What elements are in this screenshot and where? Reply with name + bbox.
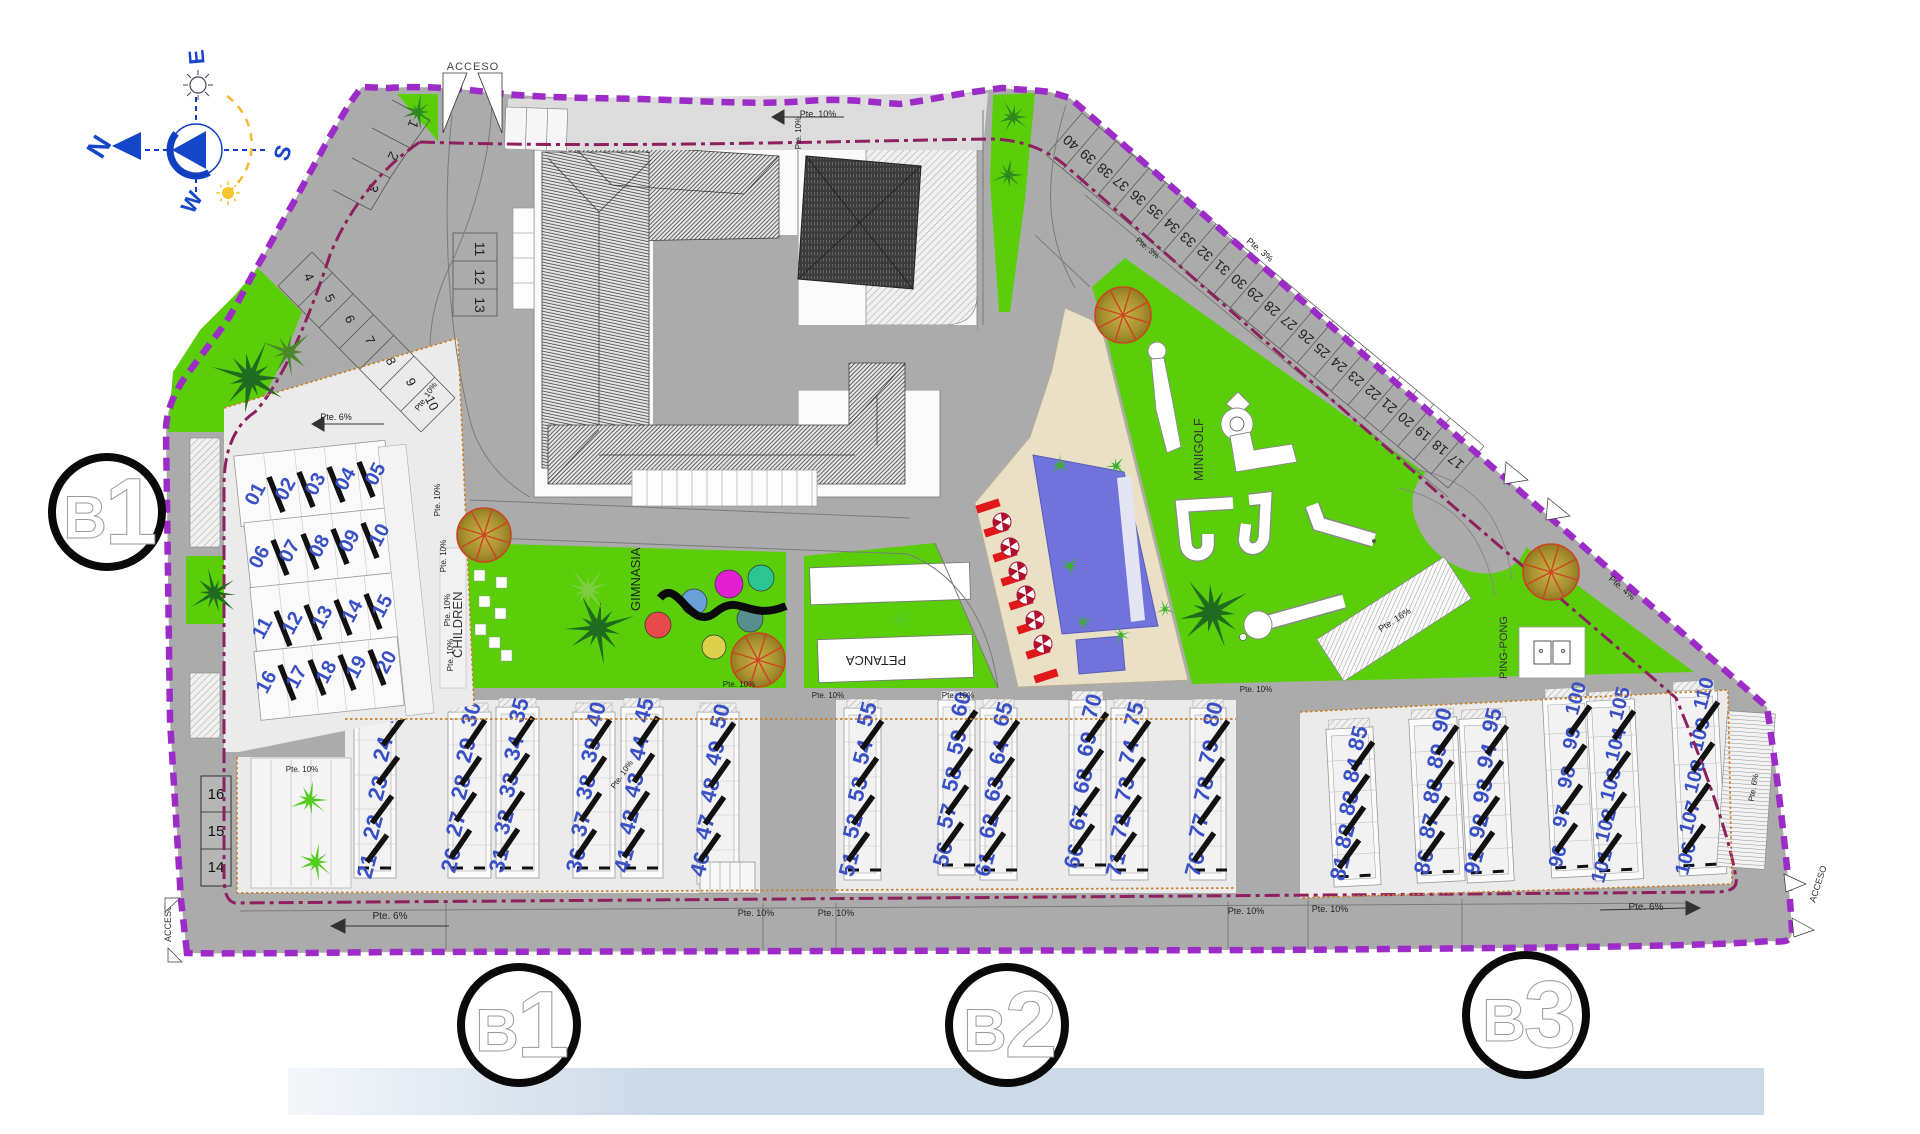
svg-text:PING-PONG: PING-PONG (1498, 616, 1510, 679)
svg-text:B: B (1482, 987, 1525, 1054)
svg-text:Pte. 10%: Pte. 10% (942, 691, 974, 700)
svg-text:Pte. 10%: Pte. 10% (818, 908, 855, 918)
svg-text:Pte. 10%: Pte. 10% (723, 680, 755, 689)
svg-text:MINIGOLF: MINIGOLF (1191, 418, 1206, 481)
svg-text:16: 16 (208, 786, 225, 803)
svg-text:Pte. 6%: Pte. 6% (320, 412, 352, 422)
svg-text:Pte. 10%: Pte. 10% (738, 908, 775, 918)
svg-text:Pte. 10%: Pte. 10% (443, 594, 452, 626)
svg-text:Pte. 10%: Pte. 10% (433, 484, 442, 516)
svg-text:B: B (475, 997, 518, 1064)
svg-text:B: B (63, 484, 106, 551)
svg-text:1: 1 (105, 459, 158, 565)
svg-text:Pte. 10%: Pte. 10% (1240, 685, 1272, 694)
svg-text:Pte. 10%: Pte. 10% (794, 117, 803, 149)
svg-text:B: B (963, 997, 1006, 1064)
svg-text:ACCESO: ACCESO (163, 904, 173, 942)
svg-text:Pte. 6%: Pte. 6% (372, 911, 407, 922)
svg-text:14: 14 (208, 859, 225, 876)
svg-text:15: 15 (208, 823, 225, 840)
svg-text:Pte. 10%: Pte. 10% (446, 639, 455, 671)
svg-text:2: 2 (1005, 972, 1058, 1078)
svg-text:PETANCA: PETANCA (845, 653, 906, 668)
svg-text:11: 11 (472, 242, 488, 257)
svg-text:ACCESO: ACCESO (447, 61, 499, 73)
svg-text:12: 12 (472, 269, 488, 285)
svg-text:Pte. 10%: Pte. 10% (439, 540, 448, 572)
svg-text:Pte. 10%: Pte. 10% (286, 765, 318, 774)
svg-text:Pte. 10%: Pte. 10% (1228, 906, 1265, 916)
svg-text:3: 3 (1524, 962, 1577, 1068)
svg-text:Pte. 10%: Pte. 10% (1312, 904, 1349, 914)
svg-text:Pte. 10%: Pte. 10% (812, 691, 844, 700)
svg-text:Pte. 6%: Pte. 6% (1628, 902, 1663, 913)
svg-text:13: 13 (472, 297, 488, 313)
svg-text:GIMNASIA: GIMNASIA (628, 547, 643, 611)
svg-text:E: E (183, 49, 209, 66)
svg-text:1: 1 (517, 972, 570, 1078)
